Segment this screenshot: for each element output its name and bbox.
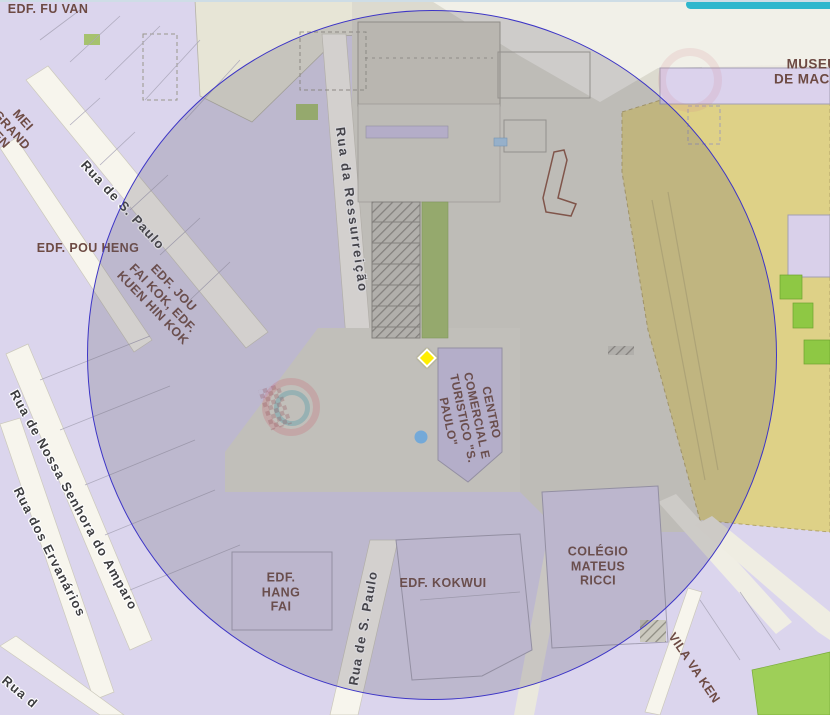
green-strip: [422, 202, 448, 338]
poi-dot-marker[interactable]: [415, 431, 428, 444]
building-museu-de-macau: [660, 68, 830, 104]
map-canvas[interactable]: EDF. FU VAN MEI GRAND EN EDF. POU HENG E…: [0, 0, 830, 715]
basemap-layer: [0, 0, 830, 715]
building-edf-hang-fai: [232, 552, 332, 630]
building-edf-kokwui: [396, 534, 532, 680]
